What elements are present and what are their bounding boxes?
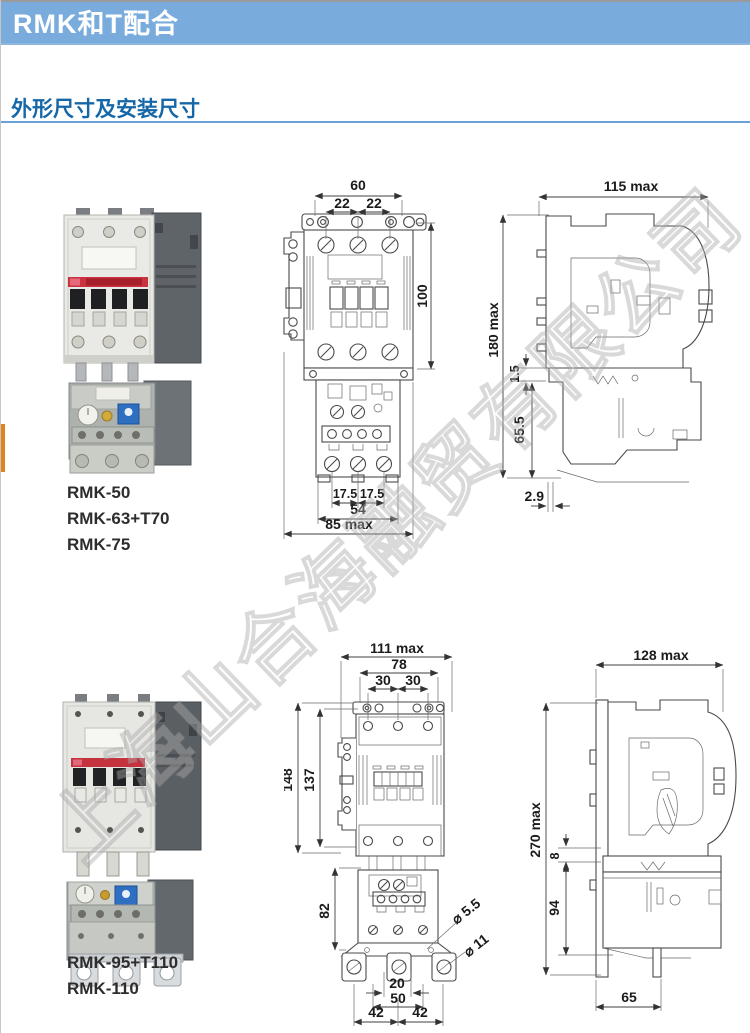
catalog-page: RMK和T配合 外形尺寸及安装尺寸 RMK-50 RMK-63+T70 — [0, 0, 750, 1033]
dim-22-right: 22 — [366, 195, 382, 211]
product-photo-rmk95 — [53, 690, 208, 990]
dim-17-5-left: 17.5 — [333, 487, 357, 501]
model-list-1: RMK-50 RMK-63+T70 RMK-75 — [67, 480, 170, 558]
front-view-drawing-rmk50: 60 22 22 100 17.5 17.5 54 85 max — [271, 168, 471, 546]
dim-100: 100 — [414, 284, 430, 308]
dim-42-right: 42 — [412, 1004, 428, 1020]
dim-137: 137 — [301, 768, 317, 792]
front-view-drawing-rmk95: 111 max 78 30 30 148 137 82 ⌀ 5.5 ⌀ 11 2… — [284, 643, 496, 1033]
dim-78: 78 — [391, 656, 407, 672]
dim-30-right: 30 — [405, 672, 421, 688]
header-banner: RMK和T配合 — [1, 2, 750, 45]
dim-54: 54 — [350, 501, 366, 517]
model-label: RMK-75 — [67, 532, 170, 558]
dim-180-max: 180 max — [489, 302, 501, 357]
dim-dia-11: ⌀ 11 — [460, 930, 491, 959]
dim-65: 65 — [621, 989, 637, 1005]
section-title: 外形尺寸及安装尺寸 — [11, 93, 200, 123]
dim-115-max: 115 max — [604, 178, 659, 194]
model-label: RMK-63+T70 — [67, 506, 170, 532]
side-view-drawing-rmk95: 128 max 270 max 8 94 65 — [529, 645, 750, 1033]
dim-50: 50 — [390, 990, 406, 1006]
dim-270-max: 270 max — [529, 802, 543, 857]
dim-1-5: 1.5 — [508, 365, 522, 382]
dim-17-5-right: 17.5 — [360, 487, 384, 501]
model-label: RMK-95+T110 — [67, 950, 178, 976]
dim-148: 148 — [284, 768, 295, 792]
dim-2-9: 2.9 — [525, 488, 545, 504]
model-label: RMK-50 — [67, 480, 170, 506]
side-view-drawing-rmk50: 115 max 180 max 1.5 65.5 2.9 — [489, 165, 750, 533]
dim-111-max: 111 max — [370, 643, 424, 656]
dim-82: 82 — [316, 903, 332, 919]
dim-60: 60 — [350, 177, 366, 193]
dim-94: 94 — [546, 900, 562, 916]
dim-8: 8 — [548, 852, 562, 859]
dim-65-5: 65.5 — [511, 416, 527, 443]
model-label: RMK-110 — [67, 976, 178, 1002]
dim-30-left: 30 — [375, 672, 391, 688]
orange-side-tab — [1, 424, 5, 472]
dim-20: 20 — [389, 975, 405, 991]
section-underline — [1, 121, 750, 123]
dim-128-max: 128 max — [633, 647, 688, 663]
dim-42-left: 42 — [368, 1004, 384, 1020]
model-list-2: RMK-95+T110 RMK-110 — [67, 950, 178, 1002]
dim-22-left: 22 — [334, 195, 350, 211]
product-photo-rmk50 — [56, 205, 206, 490]
dim-85-max: 85 max — [325, 516, 373, 532]
page-title: RMK和T配合 — [1, 2, 750, 41]
dim-dia-5-5: ⌀ 5.5 — [448, 895, 483, 927]
